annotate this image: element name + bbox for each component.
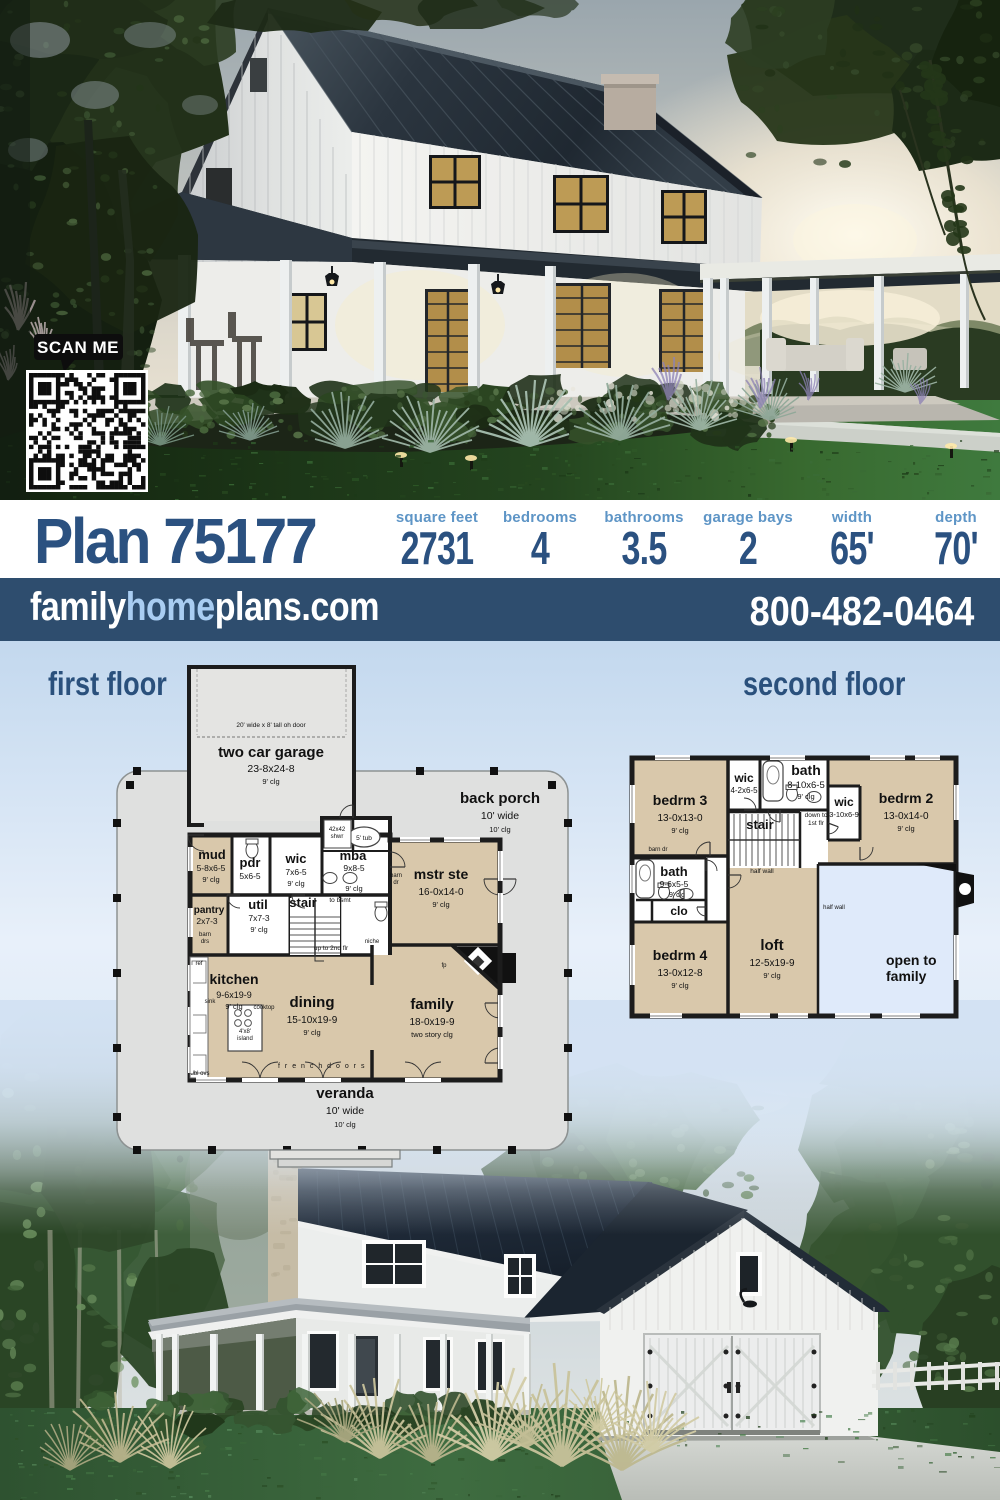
svg-text:bath: bath xyxy=(660,864,688,879)
svg-text:mba: mba xyxy=(340,848,368,863)
svg-text:9' clg: 9' clg xyxy=(303,1028,320,1037)
svg-text:bedrm 3: bedrm 3 xyxy=(653,792,708,808)
svg-text:10' wide: 10' wide xyxy=(326,1105,364,1117)
svg-text:13-0x12-8: 13-0x12-8 xyxy=(657,968,702,979)
svg-text:drs: drs xyxy=(201,939,209,945)
svg-text:9' clg: 9' clg xyxy=(225,1002,242,1011)
svg-text:9' clg: 9' clg xyxy=(262,777,279,786)
svg-text:9' clg: 9' clg xyxy=(797,792,814,801)
svg-text:5-8x6-5: 5-8x6-5 xyxy=(197,863,226,873)
svg-text:9' clg: 9' clg xyxy=(763,971,780,980)
svg-text:10' wide: 10' wide xyxy=(481,810,519,822)
svg-text:15-10x19-9: 15-10x19-9 xyxy=(287,1015,338,1026)
svg-text:pantry: pantry xyxy=(194,905,225,916)
svg-text:9' clg: 9' clg xyxy=(250,925,267,934)
svg-text:8-10x6-5: 8-10x6-5 xyxy=(787,780,825,791)
svg-text:16-0x14-0: 16-0x14-0 xyxy=(418,887,463,898)
svg-text:family: family xyxy=(886,968,927,984)
svg-text:dr: dr xyxy=(393,880,398,886)
svg-text:kitchen: kitchen xyxy=(209,971,258,987)
svg-text:dining: dining xyxy=(290,994,335,1011)
svg-text:7x7-3: 7x7-3 xyxy=(248,913,270,923)
svg-text:9' clg: 9' clg xyxy=(671,826,688,835)
svg-text:5' tub: 5' tub xyxy=(356,835,372,842)
svg-text:9-6x5-5: 9-6x5-5 xyxy=(660,879,689,889)
svg-text:island: island xyxy=(237,1036,253,1042)
svg-text:9' clg: 9' clg xyxy=(897,824,914,833)
svg-text:niche: niche xyxy=(365,939,380,945)
svg-text:barn: barn xyxy=(199,932,211,938)
svg-text:back porch: back porch xyxy=(460,790,540,807)
svg-text:ref: ref xyxy=(195,961,202,967)
svg-text:clo: clo xyxy=(670,904,687,918)
svg-text:9x8-5: 9x8-5 xyxy=(343,863,365,873)
svg-text:two car garage: two car garage xyxy=(218,744,324,761)
svg-text:5x6-5: 5x6-5 xyxy=(239,871,261,881)
svg-text:42x42: 42x42 xyxy=(329,827,346,833)
svg-text:half wall: half wall xyxy=(823,905,845,911)
svg-text:to bsmt: to bsmt xyxy=(329,897,351,904)
svg-text:bath: bath xyxy=(791,762,821,778)
svg-text:10' clg: 10' clg xyxy=(489,825,510,834)
svg-text:12-5x19-9: 12-5x19-9 xyxy=(749,958,794,969)
svg-text:4-2x6-5: 4-2x6-5 xyxy=(730,786,758,795)
svg-text:barn dr: barn dr xyxy=(648,847,667,853)
svg-text:3-10x6-9: 3-10x6-9 xyxy=(829,810,859,819)
svg-text:up to 2nd flr: up to 2nd flr xyxy=(314,945,349,952)
svg-text:9' clg: 9' clg xyxy=(202,875,219,884)
svg-text:23-8x24-8: 23-8x24-8 xyxy=(247,763,294,775)
svg-text:9' clg: 9' clg xyxy=(671,981,688,990)
svg-text:veranda: veranda xyxy=(316,1085,374,1102)
svg-text:10' clg: 10' clg xyxy=(334,1120,355,1129)
svg-text:7x6-5: 7x6-5 xyxy=(285,867,307,877)
svg-text:f r e n c h d o o r s: f r e n c h d o o r s xyxy=(278,1063,366,1070)
svg-text:two story clg: two story clg xyxy=(411,1030,453,1039)
svg-text:stair: stair xyxy=(746,817,773,832)
svg-text:pdr: pdr xyxy=(240,855,261,870)
svg-text:bedrm 2: bedrm 2 xyxy=(879,790,934,806)
svg-text:9' clg: 9' clg xyxy=(432,900,449,909)
svg-text:9' clg: 9' clg xyxy=(345,884,362,893)
svg-text:shwr: shwr xyxy=(331,834,344,840)
svg-text:9' clg: 9' clg xyxy=(669,892,685,899)
svg-text:barn: barn xyxy=(390,873,402,879)
svg-text:down to: down to xyxy=(805,812,828,819)
svg-text:util: util xyxy=(248,897,268,912)
svg-text:family: family xyxy=(410,996,454,1013)
svg-text:half wall: half wall xyxy=(750,868,774,875)
svg-text:18-0x19-9: 18-0x19-9 xyxy=(409,1017,454,1028)
svg-text:20' wide x 8' tall oh door: 20' wide x 8' tall oh door xyxy=(236,722,306,729)
svg-text:SCAN ME: SCAN ME xyxy=(37,338,119,357)
svg-text:13-0x14-0: 13-0x14-0 xyxy=(883,811,928,822)
svg-text:1st flr: 1st flr xyxy=(808,820,825,827)
svg-text:2x7-3: 2x7-3 xyxy=(196,916,218,926)
svg-text:mud: mud xyxy=(198,847,226,862)
svg-text:dbl ovs: dbl ovs xyxy=(190,1071,209,1077)
svg-text:cooktop: cooktop xyxy=(253,1005,275,1011)
svg-text:9' clg: 9' clg xyxy=(287,879,304,888)
svg-text:loft: loft xyxy=(760,937,783,954)
svg-text:bedrm 4: bedrm 4 xyxy=(653,947,708,963)
svg-text:open to: open to xyxy=(886,952,937,968)
svg-text:sink: sink xyxy=(205,999,217,1005)
svg-text:9-6x19-9: 9-6x19-9 xyxy=(216,990,252,1000)
svg-text:13-0x13-0: 13-0x13-0 xyxy=(657,813,702,824)
svg-text:wic: wic xyxy=(733,771,754,785)
svg-text:wic: wic xyxy=(833,795,854,809)
svg-text:fp: fp xyxy=(441,963,447,969)
svg-text:4'x8': 4'x8' xyxy=(239,1029,251,1035)
svg-text:wic: wic xyxy=(285,851,307,866)
svg-text:mstr ste: mstr ste xyxy=(414,866,469,882)
